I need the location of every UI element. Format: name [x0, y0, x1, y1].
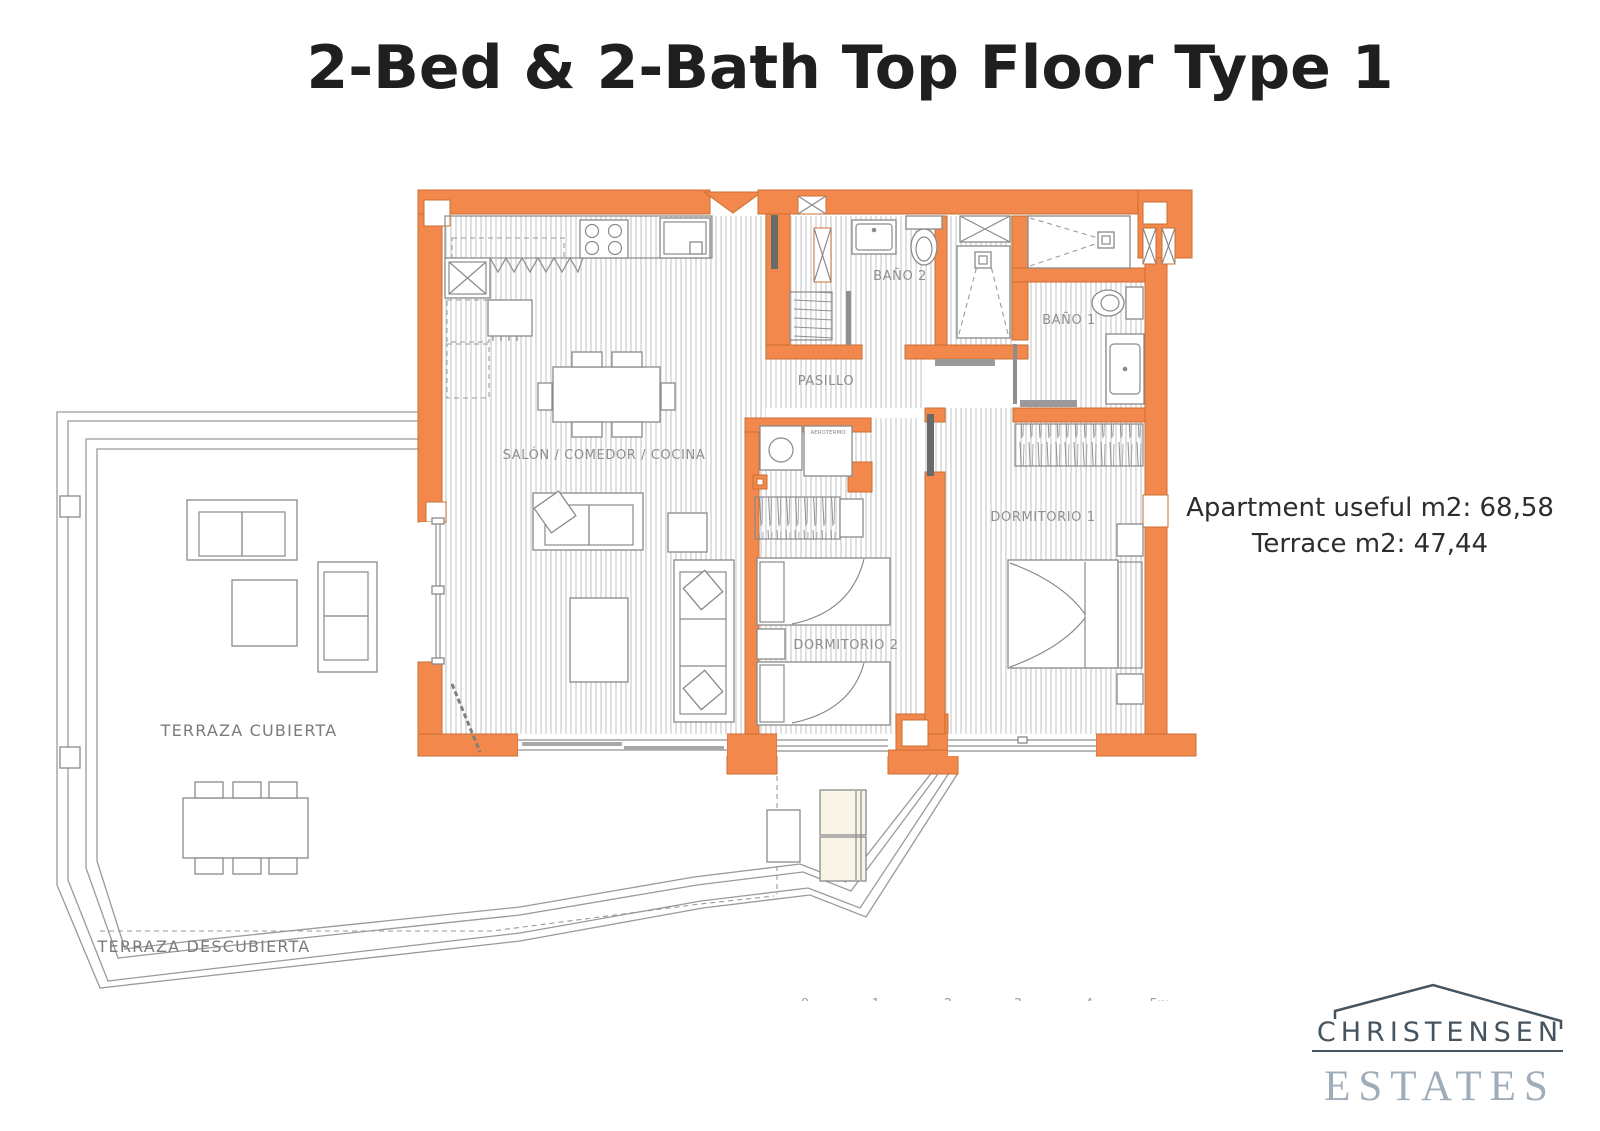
room-label-pasillo: PASILLO: [798, 374, 854, 389]
terrace-area-text: Terrace m2: 47,44: [1251, 529, 1488, 559]
wall-post: [1143, 202, 1167, 224]
wall-post: [902, 720, 928, 746]
sun-lounger: [820, 790, 866, 835]
washing-machine: [760, 426, 802, 470]
coffee-table: [570, 598, 628, 682]
kitchen-sink: [445, 258, 490, 298]
chair: [195, 858, 223, 874]
room-label-bano2: BAÑO 2: [873, 268, 927, 284]
single-bed: [757, 558, 890, 625]
bedroom2-wardrobe: [755, 497, 863, 539]
entry-wardrobe: [790, 292, 832, 340]
right-wall-window: [1143, 495, 1168, 527]
shelf: [935, 359, 995, 366]
scale-bar: 0 1 2 3 4 5m: [780, 997, 1210, 1017]
vanity-sink: [1106, 334, 1144, 404]
room-label-terraza-descubierta: TERRAZA DESCUBIERTA: [97, 937, 311, 956]
area-info: Apartment useful m2: 68,58 Terrace m2: 4…: [1186, 493, 1554, 559]
room-label-dormitorio1: DORMITORIO 1: [990, 510, 1095, 525]
wall-post: [424, 200, 450, 226]
logo-subname: ESTATES: [1324, 1063, 1556, 1110]
chair: [195, 782, 223, 798]
bedroom1-wardrobe: [1015, 424, 1143, 466]
side-table: [767, 810, 800, 862]
nightstand: [757, 629, 785, 659]
living-room-side-window: [420, 518, 444, 664]
bathroom2-door-leaf: [846, 291, 851, 345]
towel-rail: [1020, 400, 1077, 407]
nightstand: [1117, 524, 1143, 556]
chair: [233, 782, 261, 798]
aerotermo-label: AEROTERMO: [810, 430, 846, 436]
scale-bar-crop-mask: [780, 1001, 1210, 1017]
shower: [1028, 216, 1130, 268]
sun-lounger: [820, 837, 866, 881]
bedroom1-terrace-window: [948, 734, 1096, 756]
uncovered-terrace-furniture: [183, 782, 866, 881]
kitchen-cabinet: [660, 218, 710, 258]
room-label-dormitorio2: DORMITORIO 2: [793, 638, 898, 653]
page-title: 2-Bed & 2-Bath Top Floor Type 1: [307, 33, 1394, 103]
railing-post: [60, 496, 80, 517]
bedroom2-terrace-window: [777, 734, 888, 756]
chair: [269, 858, 297, 874]
utility-closet: AEROTERMO: [760, 426, 852, 476]
shower: [957, 216, 1010, 338]
stove: [580, 220, 628, 258]
side-table: [668, 513, 707, 552]
brand-logo: CHRISTENSEN ESTATES: [1312, 985, 1563, 1110]
double-bed: [1008, 560, 1118, 668]
outdoor-table: [232, 580, 297, 646]
room-label-terraza-cubierta: TERRAZA CUBIERTA: [160, 721, 338, 740]
outdoor-dining-table: [183, 798, 308, 858]
apartment-area-text: Apartment useful m2: 68,58: [1186, 493, 1554, 523]
floor-plan-sheet: AEROTERMO: [0, 0, 1600, 1131]
bedroom1-sliding-door: [927, 414, 934, 476]
nightstand: [1117, 674, 1143, 704]
room-label-salon: SALÓN / COMEDOR / COCINA: [503, 447, 706, 463]
toilet: [1092, 287, 1143, 319]
kitchen-island: [488, 300, 532, 341]
chair: [233, 858, 261, 874]
chair: [269, 782, 297, 798]
living-room-terrace-window: [518, 734, 727, 756]
floor-plan-canvas: AEROTERMO: [0, 0, 1600, 1131]
sink: [852, 220, 896, 254]
covered-terrace-furniture: [187, 500, 377, 672]
front-door-leaf: [771, 215, 778, 269]
logo-name: CHRISTENSEN: [1317, 1017, 1563, 1048]
railing-post: [60, 747, 80, 768]
bathroom1-door-leaf: [1013, 344, 1017, 404]
single-bed: [757, 662, 890, 725]
entrance-door-marker: [704, 192, 762, 213]
room-label-bano1: BAÑO 1: [1042, 312, 1096, 328]
